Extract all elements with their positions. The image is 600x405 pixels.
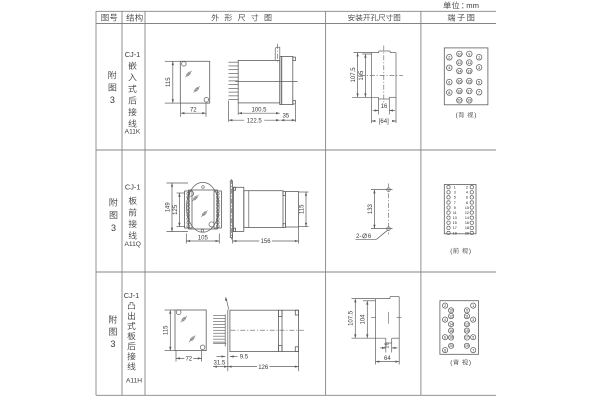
svg-text:149: 149: [165, 202, 171, 213]
svg-text:7: 7: [454, 201, 456, 205]
svg-text:35: 35: [282, 114, 289, 120]
svg-text:107.5: 107.5: [349, 310, 355, 326]
svg-text:4: 4: [448, 66, 450, 70]
svg-text:9: 9: [468, 52, 470, 56]
svg-text:9: 9: [466, 309, 468, 313]
svg-text:10: 10: [457, 52, 461, 56]
svg-text:2-: 2-: [356, 234, 361, 240]
svg-text:14: 14: [457, 69, 461, 73]
svg-text:16: 16: [381, 104, 388, 110]
svg-text:115: 115: [164, 325, 170, 335]
svg-text:2: 2: [466, 186, 468, 190]
svg-text:64: 64: [384, 356, 391, 362]
svg-text:10: 10: [465, 206, 469, 210]
svg-text:13: 13: [467, 69, 471, 73]
svg-text:18: 18: [465, 226, 469, 230]
svg-text:CJ-1: CJ-1: [124, 291, 140, 300]
svg-text:9.5: 9.5: [240, 355, 249, 361]
svg-text:A11Q: A11Q: [125, 241, 141, 248]
svg-text:17: 17: [467, 89, 471, 93]
svg-text:CJ-1: CJ-1: [125, 50, 141, 59]
svg-text:11: 11: [467, 61, 471, 65]
svg-text:126: 126: [258, 365, 269, 371]
svg-text:8: 8: [466, 201, 468, 205]
svg-text:): ): [469, 248, 471, 255]
svg-text:5: 5: [472, 335, 474, 339]
svg-text:2: 2: [444, 304, 446, 308]
svg-text:20: 20: [449, 344, 453, 348]
svg-text:12: 12: [465, 211, 469, 215]
svg-text:19: 19: [465, 344, 469, 348]
svg-text:100.5: 100.5: [251, 108, 267, 114]
svg-text:16: 16: [449, 329, 453, 333]
svg-text:A11H: A11H: [126, 377, 142, 384]
svg-text:6: 6: [448, 80, 450, 84]
svg-text:13: 13: [465, 322, 469, 326]
svg-text:14: 14: [449, 322, 453, 326]
svg-text:14: 14: [465, 216, 469, 220]
svg-text:3: 3: [110, 95, 115, 105]
svg-text:20: 20: [457, 99, 461, 103]
svg-text:19: 19: [453, 231, 457, 235]
svg-text:72: 72: [190, 108, 197, 114]
svg-text:3: 3: [472, 318, 474, 322]
svg-text:19: 19: [467, 99, 471, 103]
svg-text:9: 9: [454, 206, 456, 210]
svg-text:17: 17: [453, 226, 457, 230]
svg-text:8: 8: [444, 348, 446, 352]
svg-text:115: 115: [166, 77, 172, 87]
svg-text:mm: mm: [466, 1, 479, 10]
svg-text:7: 7: [472, 348, 474, 352]
svg-text:8: 8: [448, 91, 450, 95]
svg-text:): ): [469, 360, 471, 367]
svg-text:4: 4: [444, 318, 446, 322]
svg-text:10: 10: [449, 309, 453, 313]
svg-text:6: 6: [444, 335, 446, 339]
svg-text:18: 18: [457, 89, 461, 93]
svg-text:133: 133: [368, 203, 374, 214]
svg-text:): ): [474, 112, 476, 119]
svg-text:15: 15: [453, 221, 457, 225]
svg-text:156: 156: [261, 239, 272, 245]
svg-text:115: 115: [299, 204, 305, 214]
svg-text:4: 4: [466, 191, 468, 195]
svg-text:1: 1: [478, 56, 480, 60]
svg-text:12: 12: [457, 61, 461, 65]
svg-text:CJ-1: CJ-1: [125, 183, 141, 192]
svg-text:3: 3: [111, 223, 116, 233]
svg-text:3: 3: [478, 66, 480, 70]
svg-text:3: 3: [454, 191, 456, 195]
svg-text:5: 5: [478, 80, 480, 84]
svg-text:7: 7: [478, 91, 480, 95]
svg-text:20: 20: [465, 231, 469, 235]
svg-text:1: 1: [454, 186, 456, 190]
svg-text:3: 3: [110, 339, 115, 349]
svg-text:12: 12: [449, 314, 453, 318]
svg-text:5: 5: [454, 196, 456, 200]
svg-text:125: 125: [173, 204, 179, 215]
svg-text:122.5: 122.5: [247, 118, 263, 124]
svg-text:2: 2: [448, 56, 450, 60]
svg-text:107.5: 107.5: [351, 67, 357, 83]
svg-text:11: 11: [465, 314, 469, 318]
svg-text:15: 15: [467, 79, 471, 83]
svg-text:[64]: [64]: [379, 119, 389, 125]
svg-text:16: 16: [465, 221, 469, 225]
svg-text:A11K: A11K: [125, 128, 141, 135]
svg-text:11: 11: [453, 211, 457, 215]
svg-text:6: 6: [466, 196, 468, 200]
svg-text:105: 105: [198, 235, 209, 241]
svg-text:15: 15: [465, 329, 469, 333]
svg-text:72: 72: [185, 357, 192, 363]
svg-text:104: 104: [361, 314, 367, 325]
svg-text:17: 17: [465, 336, 469, 340]
svg-text:13: 13: [453, 216, 457, 220]
svg-text:18: 18: [449, 336, 453, 340]
svg-text:1: 1: [472, 304, 474, 308]
svg-text:16: 16: [457, 79, 461, 83]
